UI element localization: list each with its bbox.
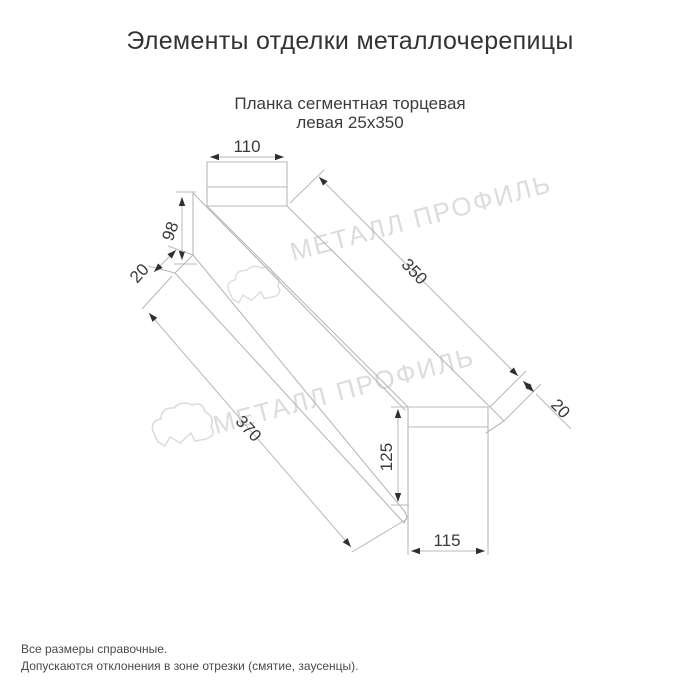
dimension-20-left: 20: [126, 246, 193, 287]
watermark-text: МЕТАЛЛ ПРОФИЛЬ: [287, 168, 555, 267]
dimension-125: 125: [377, 407, 409, 505]
dimension-label-110: 110: [233, 137, 260, 156]
dimension-20-right: 20: [504, 381, 574, 429]
dimension-label-20-right: 20: [547, 395, 574, 422]
dimension-98: 98: [158, 192, 197, 264]
dimension-label-98: 98: [158, 219, 182, 243]
bottom-tip: [404, 512, 407, 523]
footer-note: Все размеры справочные. Допускаются откл…: [21, 641, 358, 675]
dimension-label-115: 115: [433, 531, 460, 550]
cloud-logo-icon: [152, 403, 213, 446]
right-end-cut: [486, 407, 504, 433]
cloud-logo-icon: [228, 266, 280, 302]
bottom-end-section: [408, 407, 488, 549]
footer-line-2: Допускаются отклонения в зоне отрезки (с…: [21, 658, 358, 675]
footer-line-1: Все размеры справочные.: [21, 641, 358, 658]
technical-drawing: МЕТАЛЛ ПРОФИЛЬ МЕТАЛЛ ПРОФИЛЬ 110 98: [0, 0, 700, 700]
dimension-115: 115: [408, 530, 488, 555]
top-end-section: [207, 162, 287, 206]
watermark: МЕТАЛЛ ПРОФИЛЬ МЕТАЛЛ ПРОФИЛЬ: [152, 168, 555, 446]
dimension-label-125: 125: [377, 443, 396, 471]
dimension-label-20-left: 20: [126, 260, 153, 287]
dimension-110: 110: [210, 137, 284, 157]
